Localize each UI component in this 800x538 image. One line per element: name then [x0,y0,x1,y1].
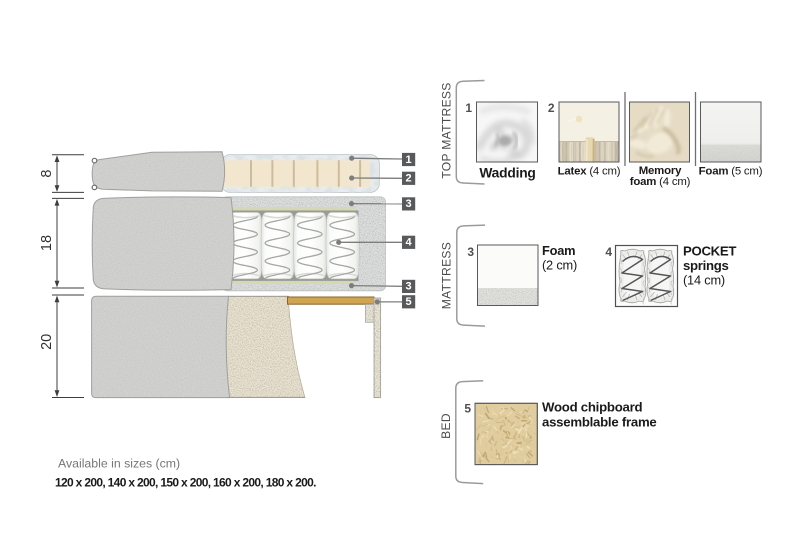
svg-text:Wood chipboard: Wood chipboard [542,400,642,415]
svg-text:2: 2 [548,101,555,115]
svg-text:springs: springs [683,258,729,273]
svg-text:BED: BED [439,413,453,439]
svg-text:5: 5 [464,402,471,416]
svg-text:4: 4 [605,245,612,259]
svg-text:3: 3 [467,245,474,259]
svg-text:Available in sizes (cm): Available in sizes (cm) [58,456,180,470]
svg-text:Wadding: Wadding [479,166,535,181]
svg-text:8: 8 [39,170,55,178]
svg-text:5: 5 [406,296,412,308]
svg-text:(2 cm): (2 cm) [542,258,577,273]
svg-text:20: 20 [39,334,55,350]
svg-text:(14 cm): (14 cm) [683,272,725,287]
svg-text:18: 18 [39,235,55,251]
svg-text:3: 3 [406,198,412,210]
svg-text:Latex (4 cm): Latex (4 cm) [558,166,621,178]
svg-text:3: 3 [406,281,412,293]
svg-text:foam (4 cm): foam (4 cm) [630,176,691,188]
svg-text:Foam: Foam [542,243,575,258]
svg-text:1: 1 [406,154,412,166]
svg-text:Foam (5 cm): Foam (5 cm) [699,166,763,178]
svg-text:2: 2 [406,173,412,185]
svg-text:MATTRESS: MATTRESS [440,242,454,309]
svg-text:POCKET: POCKET [683,244,736,259]
svg-text:1: 1 [465,101,472,115]
svg-text:TOP MATTRESS: TOP MATTRESS [440,82,454,178]
svg-text:4: 4 [406,237,413,249]
svg-text:assemblable frame: assemblable frame [542,415,657,430]
svg-text:120 x 200, 140 x 200, 150 x 20: 120 x 200, 140 x 200, 150 x 200, 160 x 2… [55,475,316,489]
